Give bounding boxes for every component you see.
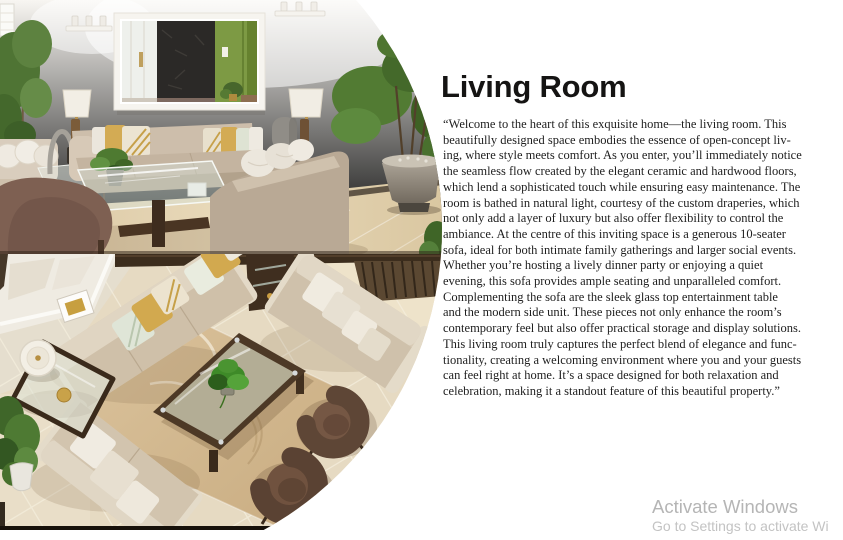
document-page: Living Room “Welcome to the heart of thi…	[0, 0, 843, 540]
page-title: Living Room	[441, 69, 627, 105]
bottom-photo	[0, 254, 443, 530]
photo-bottom-border	[0, 526, 443, 530]
wall-sconce-left	[66, 16, 112, 31]
wall-shelf	[0, 4, 14, 36]
top-photo	[0, 0, 443, 254]
watermark-line2: Go to Settings to activate Wi	[652, 518, 829, 535]
windows-activation-watermark: Activate Windows Go to Settings to activ…	[652, 495, 829, 535]
article-body-text: “Welcome to the heart of this exquisite …	[443, 117, 802, 400]
photo-collage	[0, 0, 443, 530]
watermark-line1: Activate Windows	[652, 495, 829, 518]
wall-artwork-frame	[114, 13, 265, 115]
